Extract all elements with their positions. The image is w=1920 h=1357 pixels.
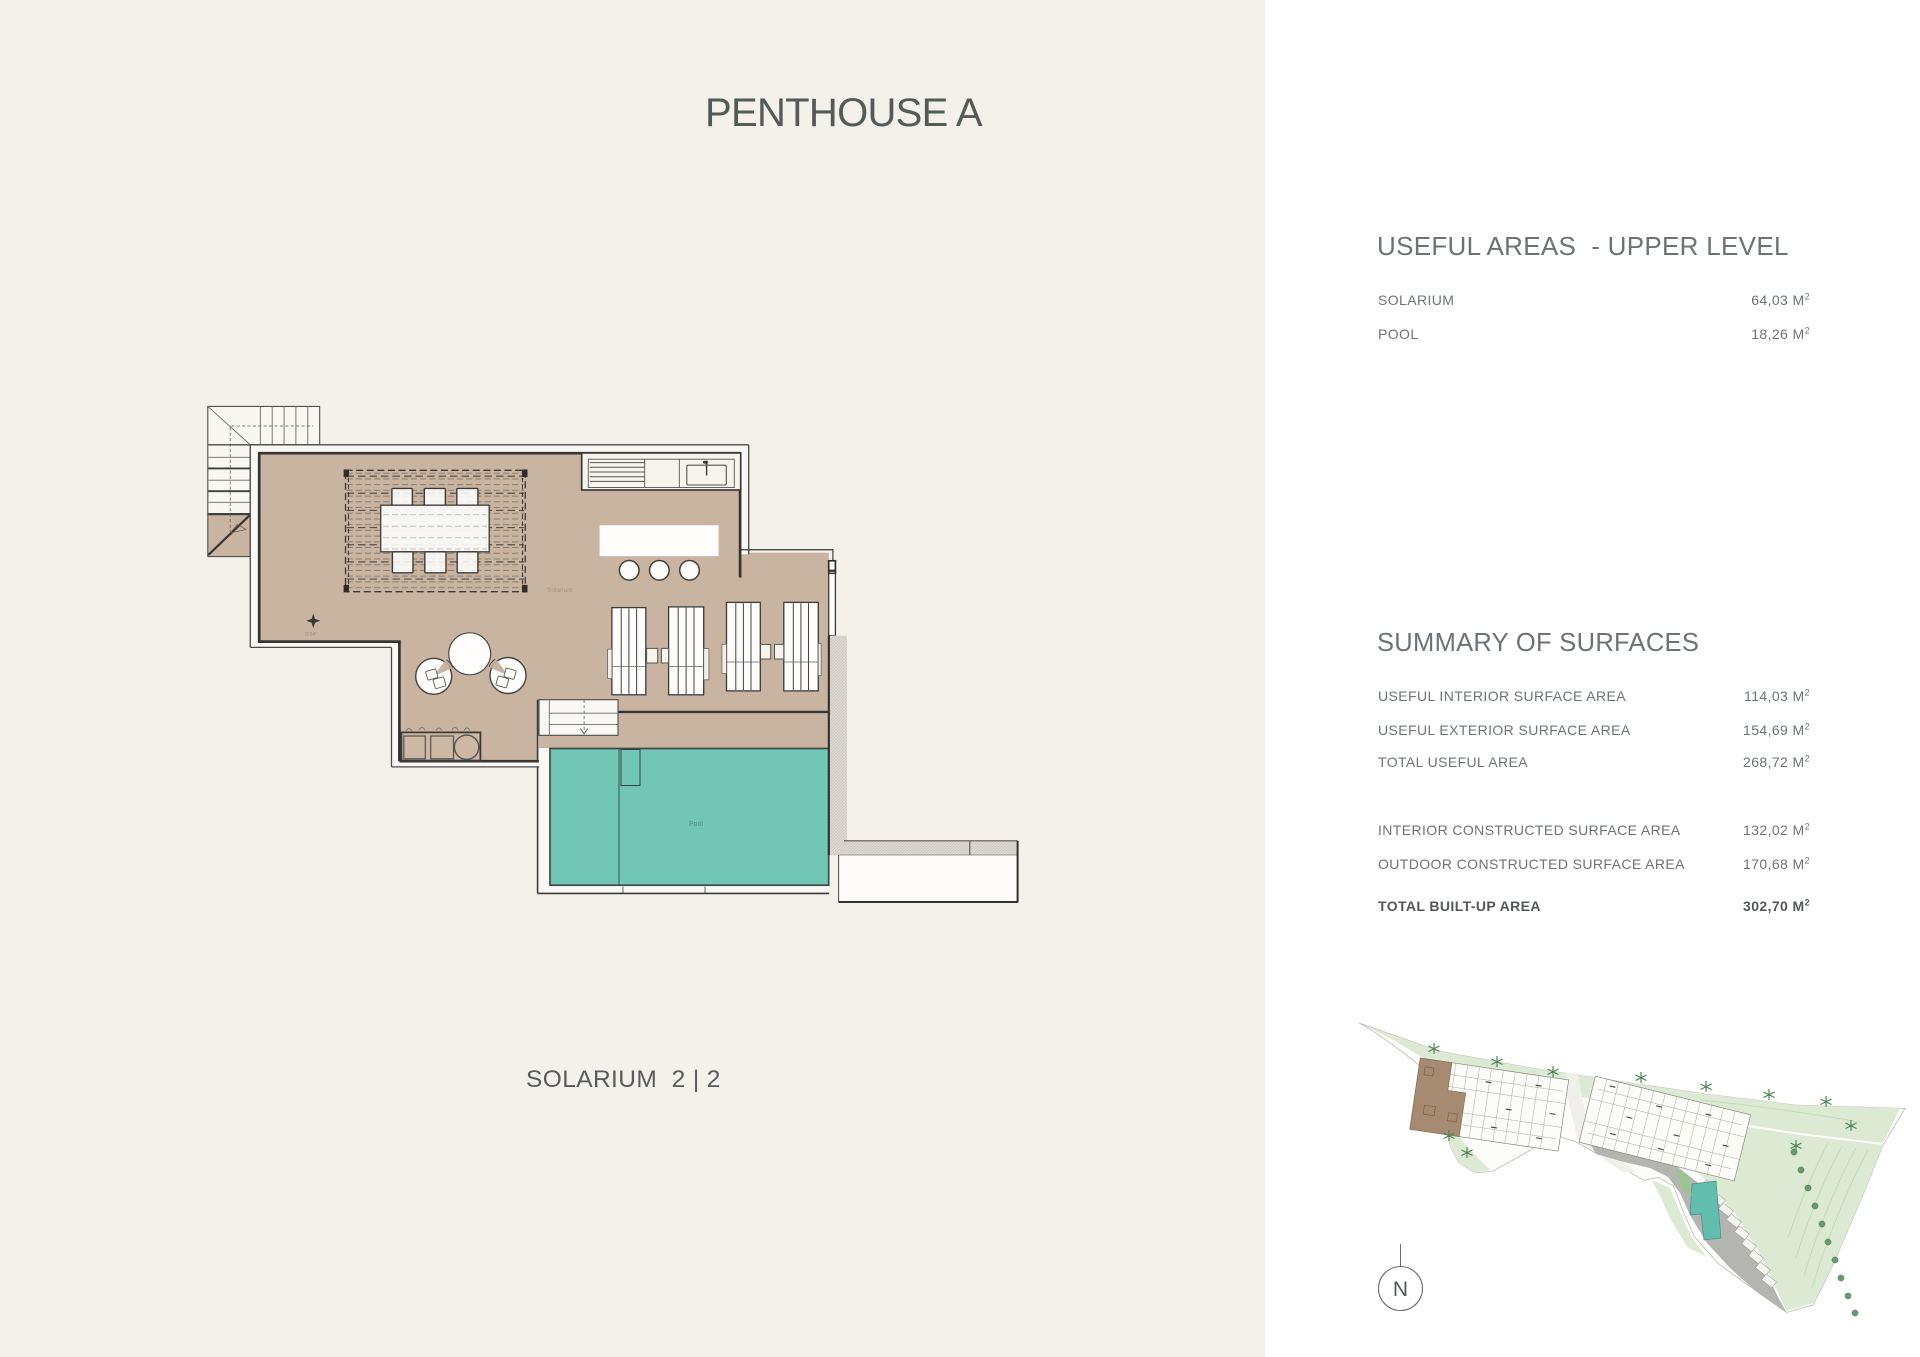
svg-text:N: N	[1393, 1278, 1408, 1301]
svg-text:Pool: Pool	[689, 821, 703, 828]
svg-text:0º24': 0º24'	[305, 632, 316, 638]
svg-text:Solarium: Solarium	[547, 587, 573, 594]
